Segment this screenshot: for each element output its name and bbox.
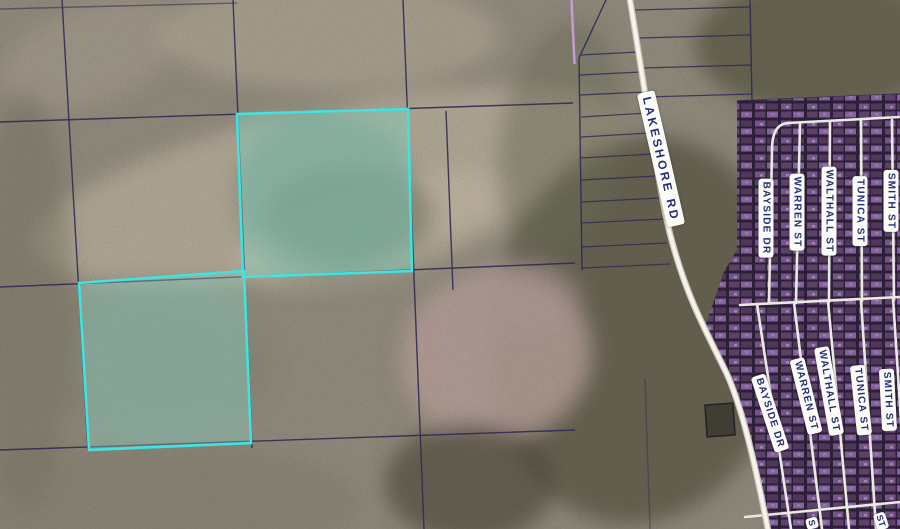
- highlighted-parcel-upper[interactable]: [237, 109, 412, 277]
- street-label-partial-s: S: [805, 516, 819, 529]
- aerial-parcel-map[interactable]: LAKESHORE RD BAYSIDE DR WARREN ST WALTHA…: [0, 0, 900, 529]
- building-footprint: [705, 403, 735, 437]
- street-label-bayside-upper: BAYSIDE DR: [759, 179, 774, 258]
- street-label-smith-lower: SMITH ST: [879, 369, 897, 432]
- street-label-smith-upper: SMITH ST: [884, 170, 899, 232]
- street-label-walthall-upper: WALTHALL ST: [822, 167, 837, 256]
- grain-overlay-light: [0, 0, 900, 529]
- street-label-tunica-upper: TUNICA ST: [853, 176, 868, 246]
- map-canvas: [0, 0, 900, 529]
- highlighted-parcel-lower[interactable]: [79, 271, 251, 450]
- street-label-warren-upper: WARREN ST: [790, 174, 805, 251]
